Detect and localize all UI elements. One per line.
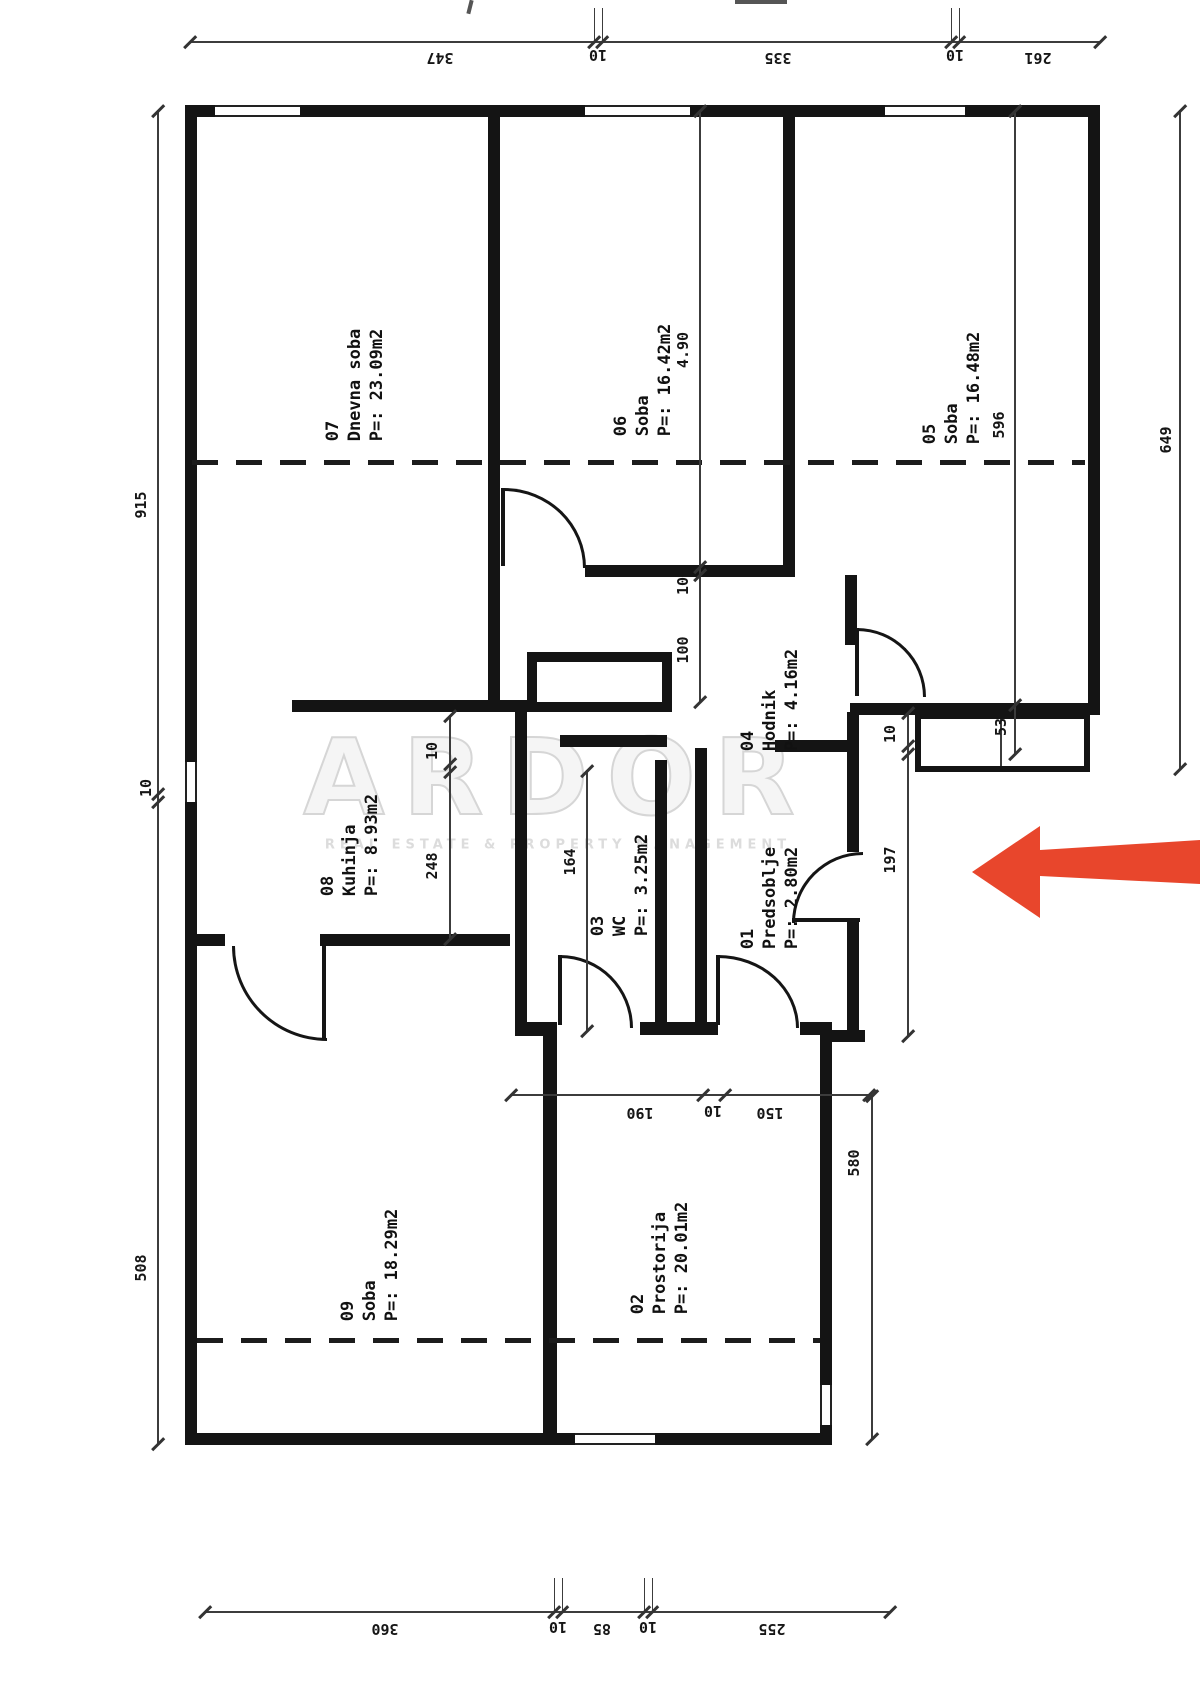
dim-guide: [602, 8, 603, 41]
wall-wc-left: [515, 712, 527, 1034]
room-label-05: 05SobaP=: 16.48m2: [919, 332, 985, 445]
wall-predsoblje-right-b: [847, 918, 859, 1042]
wall-outer-bottom: [185, 1433, 832, 1445]
dim-guide: [652, 1578, 653, 1611]
room-label-01: 01PredsobljeP=: 2.80m2: [737, 847, 803, 949]
wall-room02-top-b: [800, 1022, 832, 1035]
door-arc: [560, 955, 633, 1028]
dim-line-top: [190, 41, 1100, 43]
wall-kitchen-top: [292, 700, 527, 712]
dim-label: 248: [423, 852, 441, 879]
dim-label: 10: [674, 577, 692, 595]
room-label-08: 08KuhinjaP=: 8.93m2: [317, 794, 383, 896]
dim-line-kitchen: [449, 715, 451, 940]
wall-room06-bottom: [585, 565, 790, 577]
dim-label: 10: [639, 1618, 657, 1636]
dim-label: 360: [371, 1620, 398, 1638]
window: [820, 1385, 832, 1425]
window: [185, 762, 197, 802]
dim-label: 255: [758, 1620, 785, 1638]
section-dashed-line: [197, 1338, 820, 1343]
dim-label: 10: [589, 46, 607, 64]
wall-wc-top: [560, 735, 667, 747]
wall-room02-top-a: [640, 1022, 718, 1035]
dim-label: 100: [674, 636, 692, 663]
dim-guide: [644, 1578, 645, 1611]
room-label-02: 02ProstorijaP=: 20.01m2: [627, 1202, 693, 1315]
door-arc: [857, 628, 926, 697]
dim-line-bottom: [205, 1611, 890, 1613]
wall-room07-room06: [488, 105, 500, 706]
dim-label: 164: [561, 848, 579, 875]
wall-kitchen-bottom-b: [320, 934, 510, 946]
floor-plan: ARDOR REAL ESTATE & PROPERTY MANAGEMENT: [0, 0, 1200, 1697]
room-label-07: 07Dnevna sobaP=: 23.09m2: [322, 329, 388, 442]
dim-label: 596: [990, 411, 1008, 438]
window: [575, 1433, 655, 1445]
dim-guide: [554, 1578, 555, 1611]
wall-outer-right-upper: [1088, 105, 1100, 715]
dim-line-right: [1179, 110, 1181, 770]
dim-label: 10: [423, 742, 441, 760]
dim-label: 10: [549, 1618, 567, 1636]
dim-label: 10: [946, 46, 964, 64]
door-arc: [232, 946, 327, 1041]
dim-label: 53: [992, 718, 1010, 736]
dim-label: 197: [881, 846, 899, 873]
dim-label: 335: [764, 49, 791, 67]
top-cutoff-mark: [735, 0, 787, 4]
dim-label: 150: [756, 1104, 783, 1122]
dim-label: 347: [426, 49, 453, 67]
dim-label: 261: [1024, 49, 1051, 67]
dim-label: 4.90: [674, 332, 692, 368]
dim-label: 915: [132, 491, 150, 518]
door-arc: [718, 955, 799, 1028]
room-label-03: 03WCP=: 3.25m2: [587, 834, 653, 936]
dim-label: 85: [593, 1620, 611, 1638]
dim-label: 580: [845, 1149, 863, 1176]
dim-line-room05: [1014, 110, 1016, 755]
dim-guide: [594, 8, 595, 41]
wall-predsoblje-left: [695, 748, 707, 1035]
shaft-wall: [527, 702, 672, 712]
wall-room06-room05: [783, 105, 795, 577]
dim-label: 649: [1157, 426, 1175, 453]
window: [215, 105, 300, 117]
top-cutoff-mark: [466, 0, 473, 14]
room-label-06: 06SobaP=: 16.42m2: [610, 324, 676, 437]
entrance-arrow: [972, 826, 1200, 918]
wall-wc-right: [655, 760, 667, 1034]
wall-kitchen-bottom-a: [197, 934, 225, 946]
wall-room09-room02: [543, 1022, 557, 1445]
dim-line-left: [157, 110, 159, 1445]
dim-guide: [951, 8, 952, 41]
wall-predsoblje-right-a: [847, 712, 859, 852]
dim-label: 190: [626, 1104, 653, 1122]
section-dashed-line: [192, 460, 1085, 465]
room-label-04: 04HodnikP=: 4.16m2: [737, 649, 803, 751]
dim-label: 10: [704, 1102, 722, 1120]
dim-line-predsoblje: [907, 712, 909, 1037]
dim-label: 508: [132, 1254, 150, 1281]
window: [885, 105, 965, 117]
dim-label: 10: [881, 725, 899, 743]
dim-guide: [959, 8, 960, 41]
wall-outer-right-lower: [820, 1030, 832, 1445]
window: [585, 105, 690, 117]
shaft-wall: [527, 652, 672, 662]
dim-line-room02: [871, 1095, 873, 1440]
watermark-tagline: REAL ESTATE & PROPERTY MANAGEMENT: [325, 838, 791, 853]
room-label-09: 09SobaP=: 18.29m2: [337, 1209, 403, 1322]
dim-line-room06: [699, 110, 701, 703]
dim-label: 10: [137, 779, 155, 797]
dim-guide: [562, 1578, 563, 1611]
dim-line-hall: [510, 1094, 870, 1096]
door-arc: [504, 488, 586, 568]
